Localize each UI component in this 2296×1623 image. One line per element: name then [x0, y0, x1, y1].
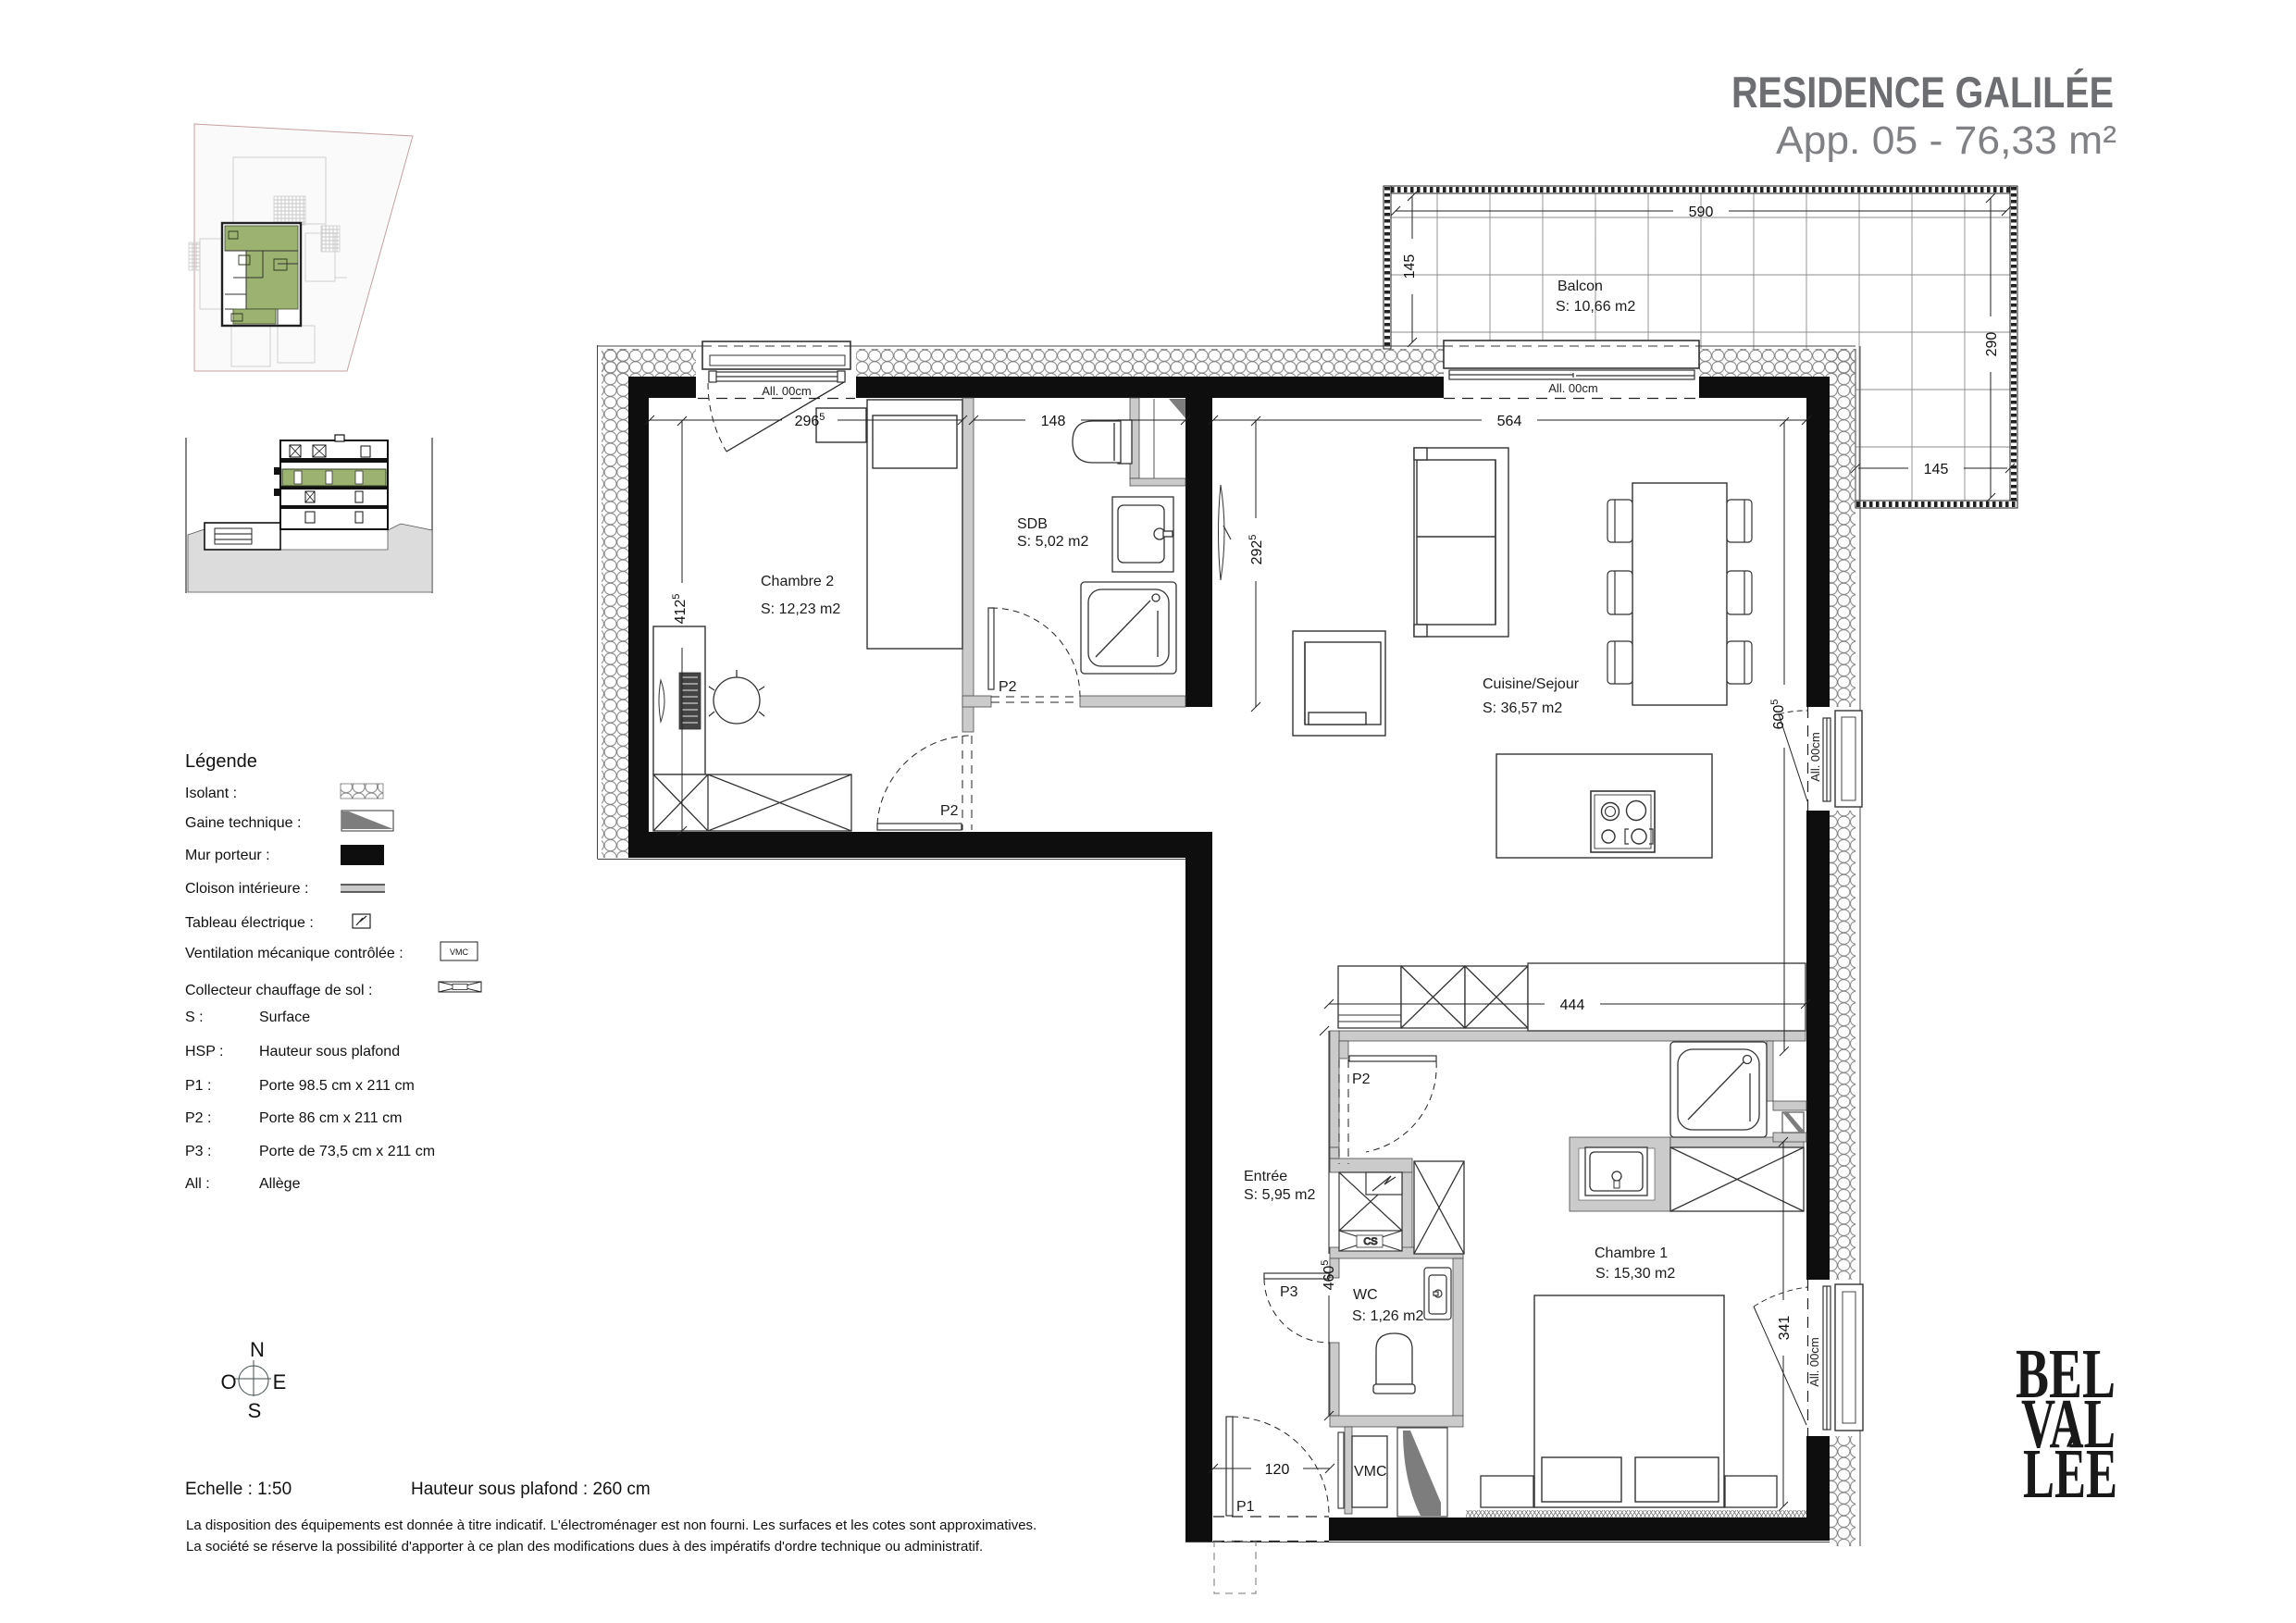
svg-text:La disposition des équipements: La disposition des équipements est donné… — [186, 1518, 1036, 1533]
svg-text:Porte de 73,5 cm x 211 cm: Porte de 73,5 cm x 211 cm — [259, 1144, 435, 1159]
svg-text:564: 564 — [1497, 414, 1522, 429]
svg-text:S :: S : — [185, 1010, 204, 1025]
svg-text:Isolant :: Isolant : — [185, 786, 237, 801]
svg-text:590: 590 — [1689, 204, 1714, 220]
svg-text:VMC: VMC — [450, 948, 469, 957]
svg-text:S: 36,57 m2: S: 36,57 m2 — [1483, 700, 1562, 716]
svg-text:N: N — [250, 1338, 265, 1361]
svg-text:RESIDENCE GALILÉE: RESIDENCE GALILÉE — [1731, 68, 2114, 117]
svg-text:Gaine technique :: Gaine technique : — [185, 815, 301, 831]
svg-text:S: 5,02 m2: S: 5,02 m2 — [1017, 534, 1088, 550]
svg-text:All. 00cm: All. 00cm — [762, 384, 811, 398]
svg-text:P2: P2 — [940, 803, 959, 819]
svg-text:P2 :: P2 : — [185, 1110, 211, 1126]
svg-text:Balcon: Balcon — [1558, 279, 1603, 294]
svg-text:All. 00cm: All. 00cm — [1808, 732, 1822, 781]
svg-text:Mur porteur :: Mur porteur : — [185, 848, 270, 863]
svg-text:S: S — [248, 1399, 262, 1422]
svg-text:145: 145 — [1402, 254, 1418, 279]
svg-text:All. 00cm: All. 00cm — [1807, 1337, 1821, 1386]
svg-text:Allège: Allège — [259, 1176, 301, 1192]
svg-text:145: 145 — [1924, 462, 1949, 477]
svg-text:S: 5,95 m2: S: 5,95 m2 — [1244, 1187, 1315, 1203]
svg-text:Hauteur sous plafond: Hauteur sous plafond — [259, 1044, 400, 1059]
svg-text:Porte 98.5 cm x 211 cm: Porte 98.5 cm x 211 cm — [259, 1078, 415, 1094]
svg-text:148: 148 — [1041, 414, 1066, 429]
svg-text:Hauteur sous plafond : 260 cm: Hauteur sous plafond : 260 cm — [411, 1480, 651, 1499]
svg-text:O: O — [220, 1370, 236, 1394]
svg-text:CS: CS — [1363, 1236, 1377, 1247]
svg-text:P1: P1 — [1236, 1499, 1255, 1515]
svg-text:S: 1,26 m2: S: 1,26 m2 — [1352, 1308, 1423, 1324]
svg-text:Porte 86 cm x 211 cm: Porte 86 cm x 211 cm — [259, 1110, 402, 1126]
svg-text:Chambre 2: Chambre 2 — [761, 574, 834, 589]
svg-text:Chambre 1: Chambre 1 — [1595, 1245, 1668, 1261]
svg-text:Collecteur chauffage de sol :: Collecteur chauffage de sol : — [185, 983, 373, 998]
svg-text:P2: P2 — [999, 679, 1017, 695]
svg-text:All :: All : — [185, 1176, 210, 1192]
svg-text:App. 05 - 76,33 m²: App. 05 - 76,33 m² — [1776, 118, 2116, 163]
svg-text:290: 290 — [1984, 332, 2000, 357]
svg-text:S: 15,30 m2: S: 15,30 m2 — [1595, 1266, 1675, 1282]
svg-text:P1 :: P1 : — [185, 1078, 211, 1094]
svg-text:Echelle : 1:50: Echelle : 1:50 — [185, 1480, 292, 1499]
svg-text:Cuisine/Sejour: Cuisine/Sejour — [1483, 676, 1580, 692]
svg-text:LÉE: LÉE — [2023, 1435, 2117, 1513]
svg-text:341: 341 — [1777, 1316, 1793, 1341]
svg-text:P2: P2 — [1352, 1072, 1371, 1087]
svg-text:Ventilation mécanique contrôlé: Ventilation mécanique contrôlée : — [185, 946, 403, 961]
svg-text:E: E — [273, 1370, 287, 1394]
svg-text:P3: P3 — [1280, 1284, 1298, 1300]
svg-text:120: 120 — [1265, 1462, 1290, 1478]
svg-text:Légende: Légende — [185, 751, 257, 772]
svg-text:VMC: VMC — [1354, 1464, 1387, 1480]
svg-text:S: 10,66 m2: S: 10,66 m2 — [1556, 299, 1635, 315]
svg-text:All. 00cm: All. 00cm — [1548, 381, 1597, 395]
svg-text:HSP :: HSP : — [185, 1044, 224, 1059]
svg-text:S: 12,23 m2: S: 12,23 m2 — [761, 601, 840, 617]
svg-text:La société se réserve la possi: La société se réserve la possibilité d'a… — [186, 1539, 983, 1555]
svg-text:WC: WC — [1353, 1287, 1378, 1303]
svg-text:Entrée: Entrée — [1244, 1169, 1287, 1184]
svg-text:Cloison intérieure :: Cloison intérieure : — [185, 881, 308, 897]
svg-text:Tableau électrique :: Tableau électrique : — [185, 915, 314, 931]
svg-text:P3 :: P3 : — [185, 1144, 211, 1159]
svg-text:SDB: SDB — [1017, 516, 1048, 532]
svg-text:444: 444 — [1560, 997, 1585, 1013]
svg-text:Surface: Surface — [259, 1010, 310, 1025]
